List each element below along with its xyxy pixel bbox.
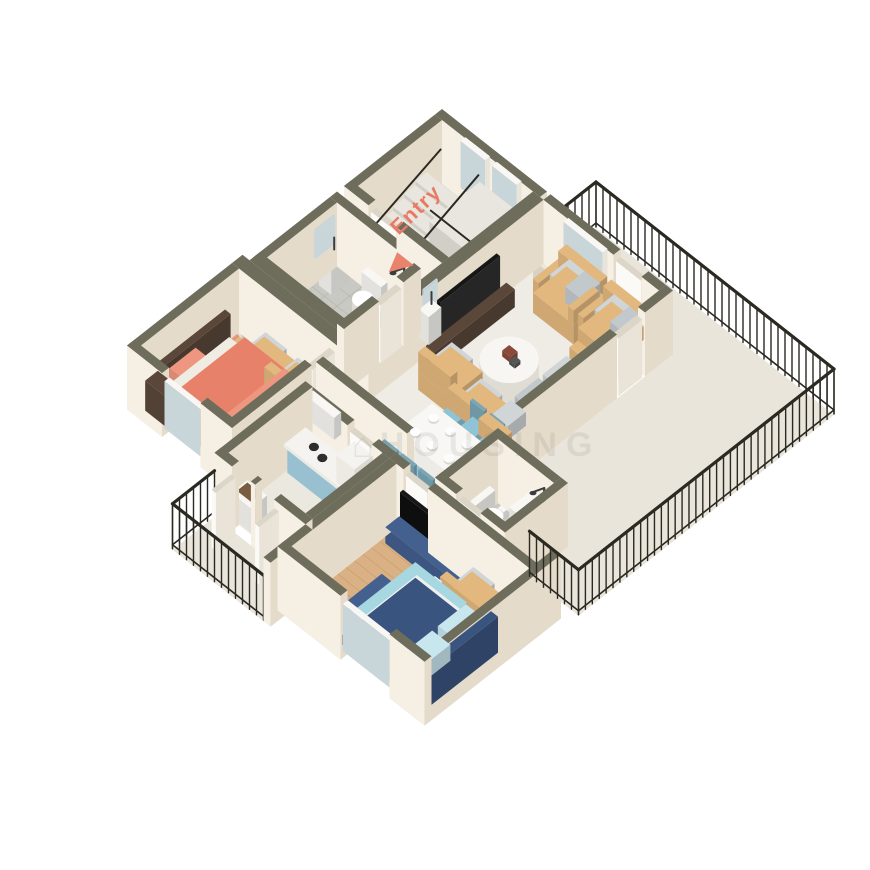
dining-plate-top	[427, 441, 438, 450]
bath1-mirror-face-l	[314, 230, 316, 259]
kitchen-burner-b-top	[317, 454, 327, 462]
dining-plate-top	[410, 428, 421, 437]
dining-plate-top	[444, 454, 455, 463]
floorplan-stage: Entry ⌂ HOUSING	[0, 0, 870, 870]
kitchen-burner-a-top	[309, 443, 319, 451]
bath1-shower-head	[390, 271, 397, 275]
kitchen-wall-bottom-b-face-l	[251, 481, 255, 548]
dining-plate-top	[462, 440, 473, 449]
balcony-end-wall-face-l	[264, 557, 271, 627]
bed2-wall-bottom-b-face-r	[425, 656, 432, 726]
dining-plate-top	[428, 413, 439, 422]
dining-plate-top	[445, 427, 456, 436]
balcony-open-door-a-face-l	[212, 490, 216, 551]
floorplan-3d-render: Entry	[0, 0, 870, 870]
bath2-shower-head	[530, 491, 537, 495]
